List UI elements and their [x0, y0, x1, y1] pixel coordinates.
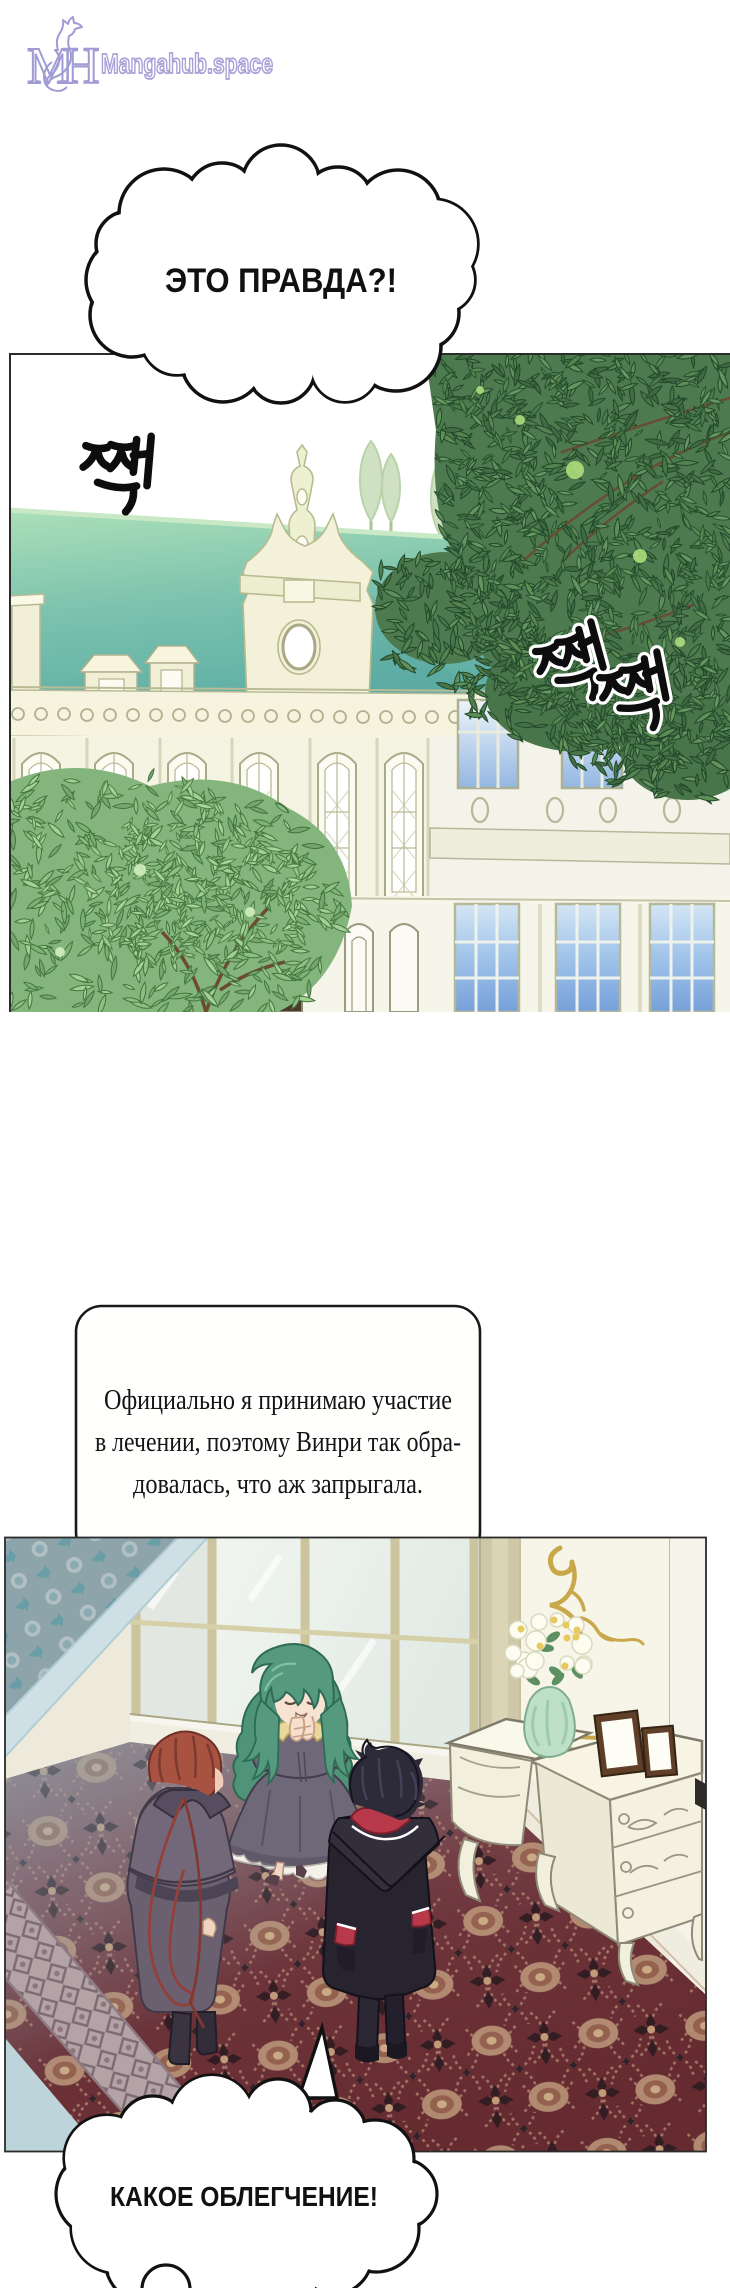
svg-text:довалась, что аж запрыгала.: довалась, что аж запрыгала. [133, 1468, 423, 1500]
svg-text:в лечении, поэтому Винри так о: в лечении, поэтому Винри так обра- [95, 1426, 461, 1458]
svg-text:КАКОЕ ОБЛЕГЧЕНИЕ!: КАКОЕ ОБЛЕГЧЕНИЕ! [110, 2181, 378, 2212]
svg-text:ЭТО ПРАВДА?!: ЭТО ПРАВДА?! [165, 262, 397, 300]
svg-text:Mangahub.space: Mangahub.space [101, 48, 273, 79]
svg-text:Официально я принимаю участие: Официально я принимаю участие [104, 1384, 452, 1416]
